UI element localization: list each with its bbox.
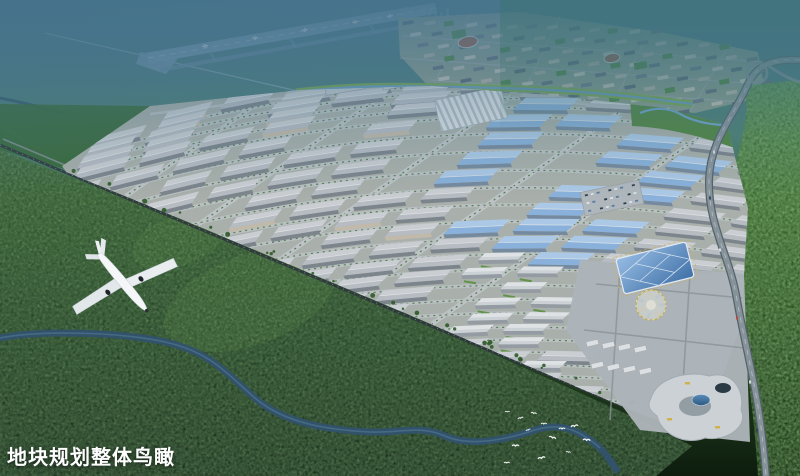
scene-canvas (0, 0, 800, 476)
atmosphere-haze (0, 0, 800, 476)
image-caption: 地块规划整体鸟瞰 (7, 441, 175, 470)
aerial-rendering: 地块规划整体鸟瞰 (0, 0, 800, 476)
